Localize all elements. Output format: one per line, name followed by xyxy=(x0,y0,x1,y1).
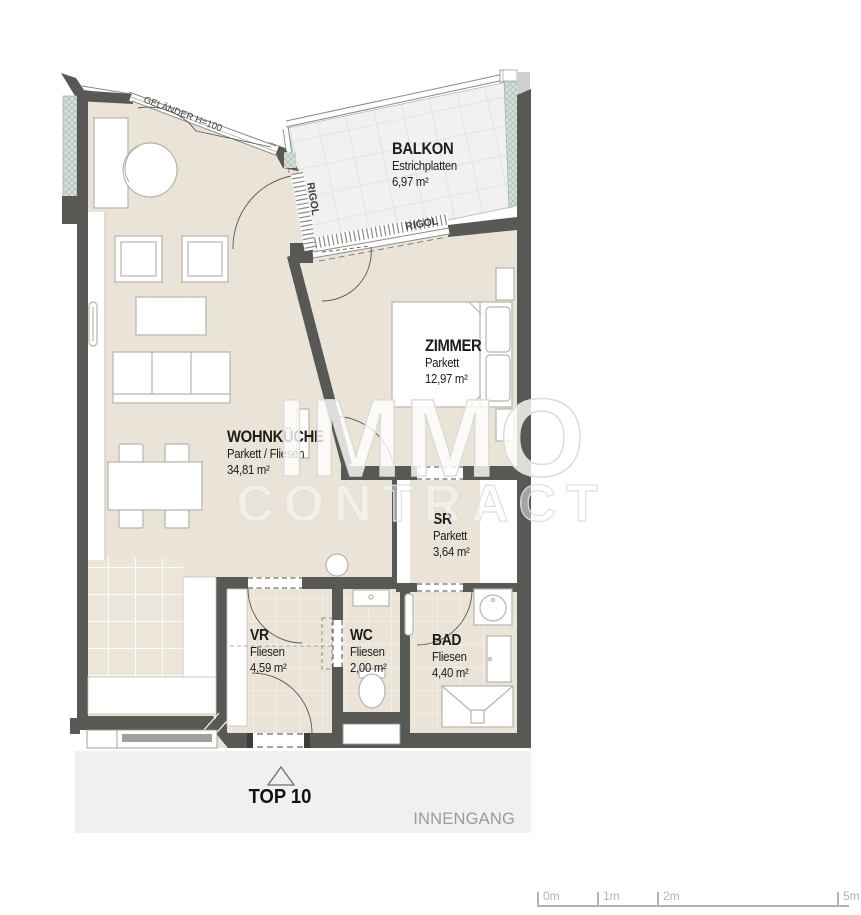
scale-label-0m: 0m xyxy=(543,889,560,903)
room-area: 4,40 m² xyxy=(432,666,469,682)
room-name: BALKON xyxy=(392,140,457,159)
room-name: SR xyxy=(433,511,470,529)
scale-label-2m: 2m xyxy=(663,889,680,903)
scale-tick xyxy=(537,892,539,905)
room-area: 3,64 m² xyxy=(433,545,470,561)
room-material: Fliesen xyxy=(250,645,287,661)
label-zimmer: ZIMMER Parkett 12,97 m² xyxy=(425,337,481,388)
scale-label-1m: 1m xyxy=(603,889,620,903)
room-area: 6,97 m² xyxy=(392,175,457,191)
room-material: Parkett xyxy=(425,356,481,372)
floorplan-page: GELÄNDER H=100 RIGOL RIGOL BALKON Estric… xyxy=(0,0,861,915)
scale-label-5m: 5m xyxy=(843,889,860,903)
scale-bar: 0m 1m 2m 5m xyxy=(537,889,849,907)
room-material: Fliesen xyxy=(350,645,387,661)
north-triangle-icon xyxy=(266,765,296,787)
scale-tick xyxy=(597,892,599,905)
room-name: BAD xyxy=(432,632,469,650)
room-area: 4,59 m² xyxy=(250,661,287,677)
label-wc: WC Fliesen 2,00 m² xyxy=(350,627,387,677)
entrance-strip: TOP 10 INNENGANG xyxy=(75,751,531,833)
room-area: 12,97 m² xyxy=(425,372,481,388)
scale-tick xyxy=(657,892,659,905)
room-name: ZIMMER xyxy=(425,337,481,356)
entrance-label: INNENGANG xyxy=(365,810,515,829)
label-wohnkueche: WOHNKÜCHE Parkett / Fliesen 34,81 m² xyxy=(227,428,324,479)
label-sr: SR Parkett 3,64 m² xyxy=(433,511,470,561)
room-material: Parkett / Fliesen xyxy=(227,447,324,463)
room-name: WC xyxy=(350,627,387,645)
room-name: VR xyxy=(250,627,287,645)
label-balkon: BALKON Estrichplatten 6,97 m² xyxy=(392,140,457,191)
room-name: WOHNKÜCHE xyxy=(227,428,324,447)
unit-label: TOP 10 xyxy=(234,786,326,809)
room-area: 2,00 m² xyxy=(350,661,387,677)
scale-tick xyxy=(837,892,839,905)
room-material: Parkett xyxy=(433,529,470,545)
label-vr: VR Fliesen 4,59 m² xyxy=(250,627,287,677)
room-material: Estrichplatten xyxy=(392,159,457,175)
room-material: Fliesen xyxy=(432,650,469,666)
room-area: 34,81 m² xyxy=(227,463,324,479)
label-bad: BAD Fliesen 4,40 m² xyxy=(432,632,469,682)
